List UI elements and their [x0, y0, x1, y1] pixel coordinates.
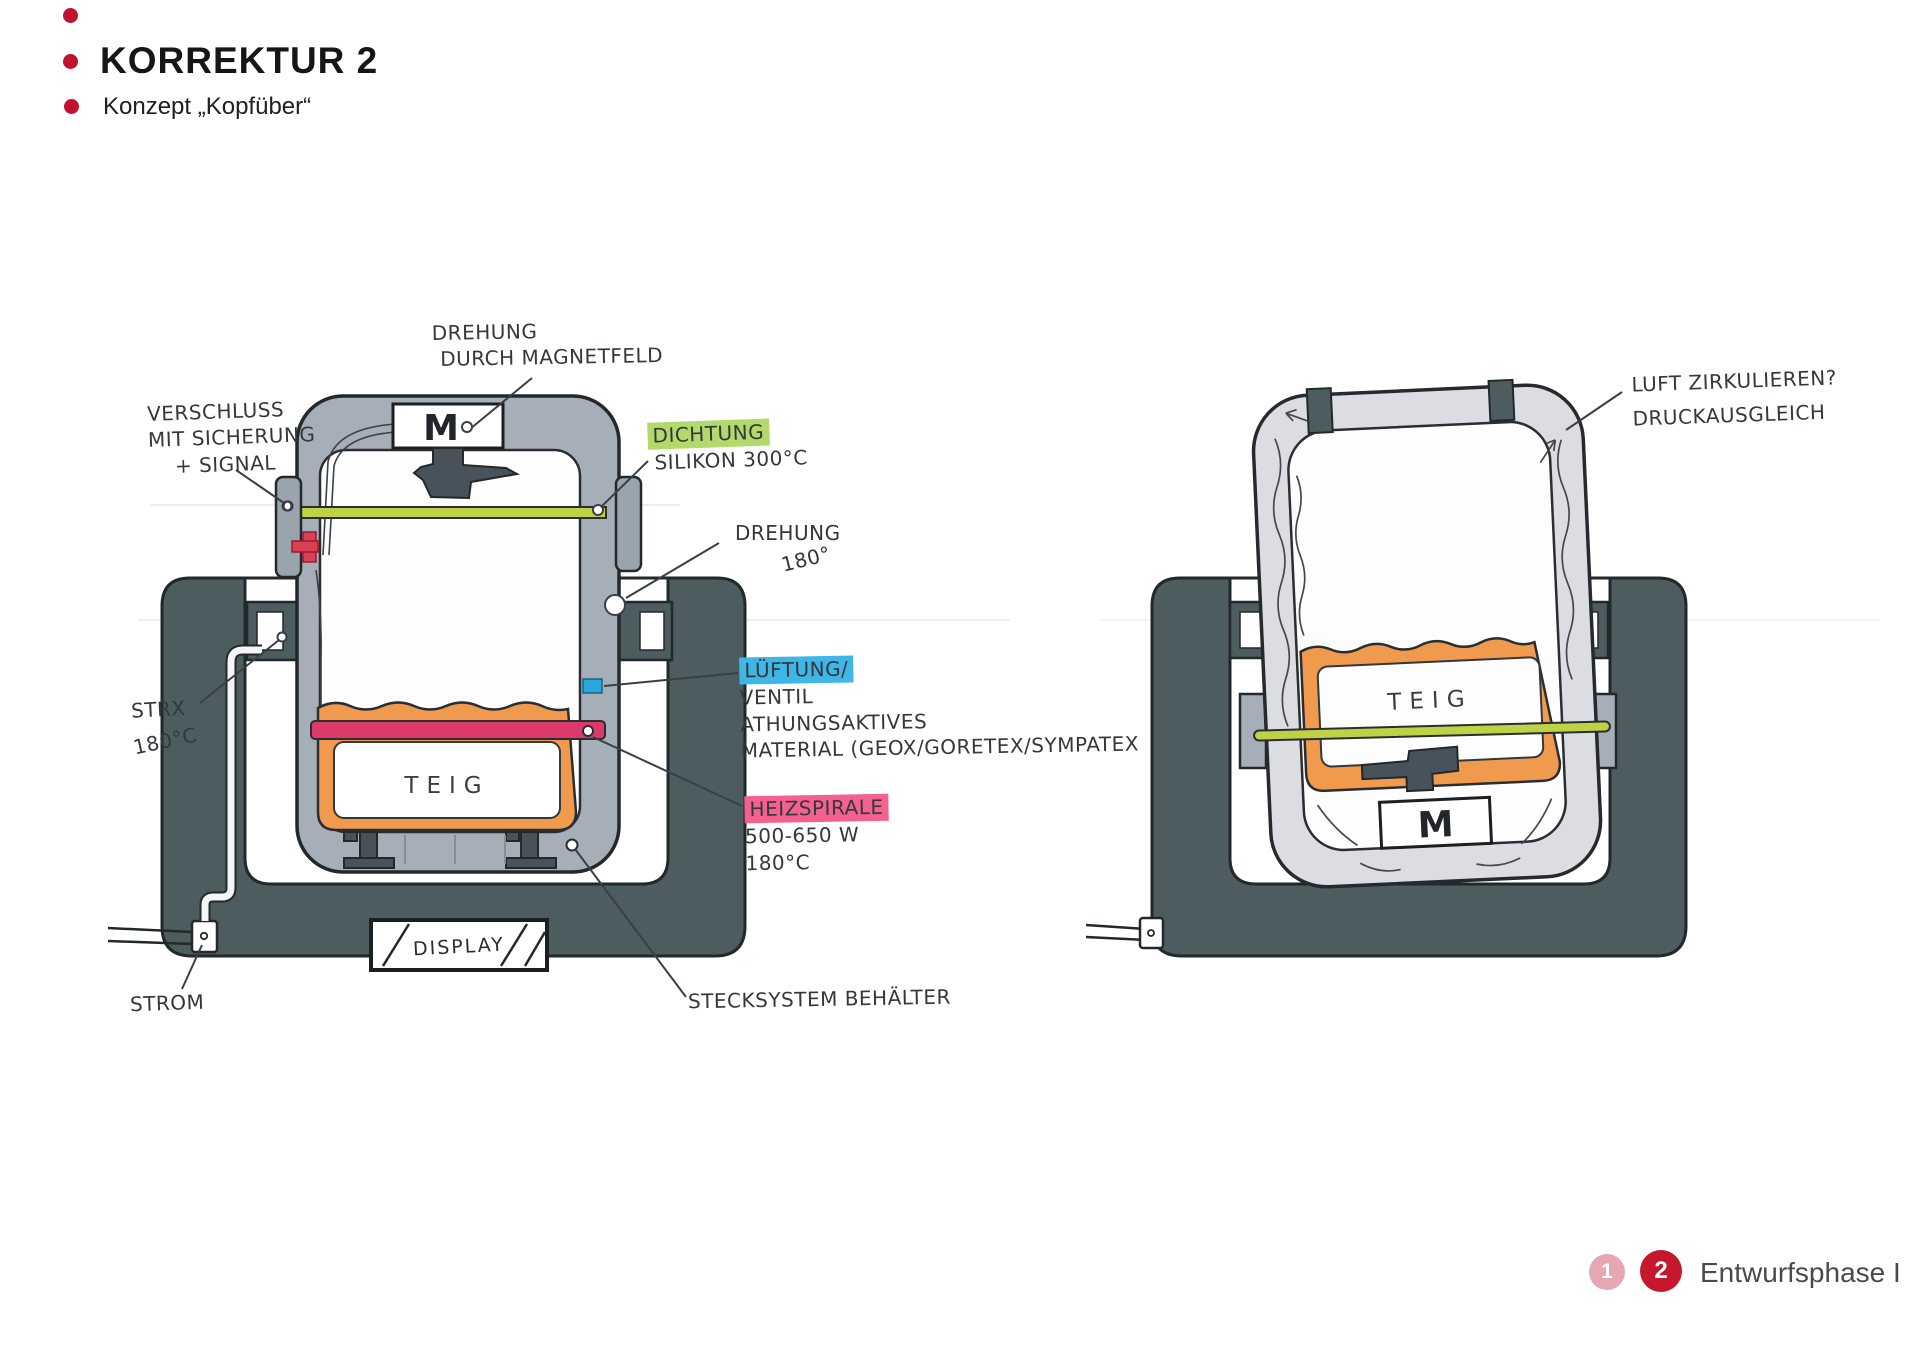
annotation-luft: LUFT ZIRKULIEREN? DRUCKAUSGLEICH	[1631, 364, 1839, 432]
foot-up-right	[1489, 380, 1515, 421]
annotation-line: 500-650 W	[745, 821, 889, 850]
latch-right	[616, 477, 641, 571]
page-indicator-1[interactable]: 1	[1589, 1254, 1625, 1290]
annotation-line: DREHUNG	[432, 316, 663, 346]
page-number: 2	[1654, 1257, 1667, 1285]
annotation-verschluss: VERSCHLUSS MIT SICHERUNG + SIGNAL	[147, 395, 317, 480]
slide-canvas: KORREKTUR 2 Konzept „Kopfüber“	[0, 0, 1920, 1358]
page-title: KORREKTUR 2	[100, 40, 378, 82]
highlight-heizspirale: HEIZSPIRALE	[744, 794, 888, 824]
dough-label: TEIG	[1386, 686, 1473, 716]
highlight-lueftung: LÜFTUNG/	[739, 655, 853, 684]
annotation-stecksystem: STECKSYSTEM BEHÄLTER	[688, 984, 951, 1015]
motor-label: M	[1417, 804, 1455, 847]
machine-body: M TEIG	[276, 396, 641, 872]
page-number: 1	[1601, 1260, 1613, 1284]
seal-line	[294, 507, 606, 518]
page-indicator-2[interactable]: 2	[1640, 1250, 1682, 1292]
foot-up-left	[1307, 388, 1333, 433]
annotation-magnet-drive: DREHUNG DURCH MAGNETFELD	[432, 316, 664, 373]
bullet-icon	[64, 99, 79, 114]
bullet-icon	[63, 54, 78, 69]
highlight-dichtung: DICHTUNG	[647, 419, 770, 451]
motor-box: M	[1380, 797, 1492, 848]
annotation-line: 180°C	[745, 848, 889, 877]
bullet-icon	[63, 8, 78, 23]
display: DISPLAY	[371, 920, 547, 970]
annotation-dichtung: DICHTUNG SILIKON 300°C	[647, 417, 808, 476]
motor-box: M	[393, 404, 503, 449]
dough-label: TEIG	[403, 773, 489, 799]
annotation-strx: STRX 180°C	[131, 694, 199, 756]
annotation-heizspirale: HEIZSPIRALE 500-650 W 180°C	[744, 794, 889, 877]
annotation-drehung-180: DREHUNG 180°	[735, 520, 841, 573]
heater-bar	[311, 721, 605, 739]
page-subtitle: Konzept „Kopfüber“	[103, 93, 311, 121]
phase-label: Entwurfsphase I	[1700, 1257, 1901, 1289]
annotation-line: DURCH MAGNETFELD	[432, 342, 663, 372]
annotation-line: STROM	[130, 989, 205, 1018]
annotation-line: STECKSYSTEM BEHÄLTER	[688, 984, 951, 1015]
annotation-line: SILIKON 300°C	[648, 445, 808, 477]
vent	[583, 679, 602, 693]
power-connector	[1086, 918, 1163, 948]
annotation-line: STRX	[131, 694, 197, 724]
motor-label: M	[423, 408, 459, 449]
inverted-shell: TEIG M	[1251, 377, 1603, 889]
annotation-strom: STROM	[130, 989, 205, 1018]
